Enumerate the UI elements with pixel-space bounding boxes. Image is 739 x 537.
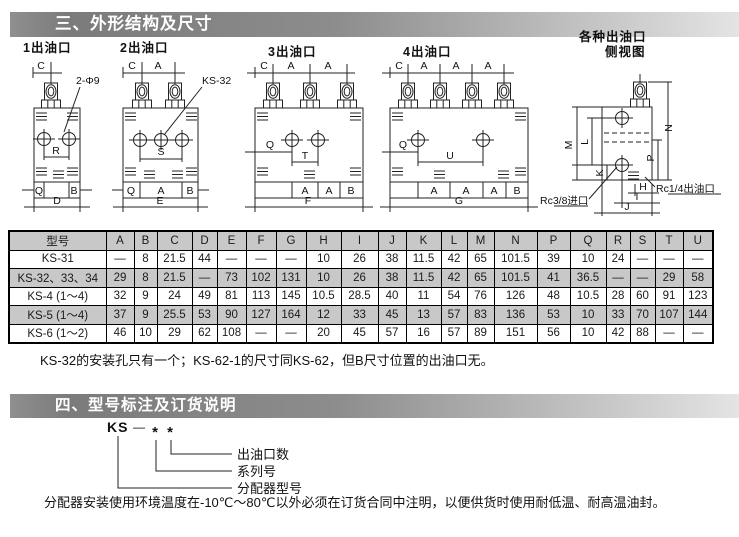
dim-a: A — [154, 60, 161, 72]
outlet-3-drawing: 3出油口 C A A Q T A A B F — [245, 44, 373, 212]
dim-i: I — [636, 191, 639, 203]
dim-r: R — [52, 145, 60, 157]
cell: 113 — [246, 287, 276, 306]
cell: 11 — [406, 287, 441, 306]
cell: 10 — [306, 250, 341, 269]
cell: 101.5 — [494, 269, 537, 288]
outlet-1-title: 1出油口 — [23, 40, 71, 55]
cell: 10.5 — [570, 287, 606, 306]
cell: 57 — [441, 324, 467, 343]
col-header: T — [655, 231, 683, 250]
inlet-port-label: Rc3/8进口 — [540, 195, 588, 207]
cell: 9 — [134, 287, 157, 306]
model-code-prefix: KS — [107, 419, 128, 435]
dim-e-overall: E — [156, 195, 163, 207]
dim-g-overall: G — [455, 195, 463, 207]
cell: 24 — [606, 250, 630, 269]
side-view-drawing: 各种出油口 侧视图 M L K N P H I J Rc3/8进口 Rc1/4出… — [540, 29, 721, 216]
col-header: S — [630, 231, 655, 250]
cell: 29 — [106, 269, 134, 288]
col-header: B — [134, 231, 157, 250]
cell: 145 — [276, 287, 306, 306]
dim-p: P — [645, 154, 657, 161]
dim-a3: A — [484, 60, 491, 72]
cell: 70 — [630, 306, 655, 325]
dim-q: Q — [266, 139, 274, 151]
dim-c: C — [260, 60, 268, 72]
cell: 57 — [378, 324, 406, 343]
dim-m: M — [563, 141, 575, 150]
col-header: P — [537, 231, 570, 250]
cell: 54 — [441, 287, 467, 306]
cell: 10 — [570, 324, 606, 343]
cell: 53 — [537, 306, 570, 325]
cell: — — [655, 324, 683, 343]
ks32-callout: KS-32 — [202, 75, 231, 87]
dimension-table: 型号ABCDEFGHIJKLMNPQRSTU KS-31—821.544———1… — [8, 230, 714, 344]
cell: 33 — [606, 306, 630, 325]
col-header: N — [494, 231, 537, 250]
table-row: KS-31—821.544———10263811.54265101.539102… — [9, 250, 713, 269]
cell: 58 — [683, 269, 713, 288]
cell: 10.5 — [306, 287, 341, 306]
dim-q: Q — [127, 185, 135, 197]
dim-q: Q — [35, 185, 43, 197]
dim-a6: A — [490, 185, 497, 197]
cell: 127 — [246, 306, 276, 325]
cell: 42 — [441, 269, 467, 288]
cell: 12 — [306, 306, 341, 325]
cell: 136 — [494, 306, 537, 325]
col-header: R — [606, 231, 630, 250]
cell: 60 — [630, 287, 655, 306]
side-view-title-line2: 侧视图 — [605, 44, 646, 59]
dim-j: J — [624, 201, 629, 213]
ordering-note: 分配器安装使用环境温度在-10℃～80℃以外必须在订货合同中注明，以便供货时使用… — [44, 492, 665, 511]
col-header: H — [306, 231, 341, 250]
cell: 83 — [467, 306, 494, 325]
table-row: KS-6 (1～2)46102962108——20455716578915156… — [9, 324, 713, 343]
cell: 123 — [683, 287, 713, 306]
col-header: U — [683, 231, 713, 250]
col-header: L — [441, 231, 467, 250]
outlet-2-drawing: 2出油口 C A KS-32 S Q A B E — [112, 40, 231, 212]
cell: 45 — [341, 324, 378, 343]
cell: 102 — [246, 269, 276, 288]
outlet-4-drawing: 4出油口 C A A A Q U A A A B G — [380, 44, 538, 212]
col-header: E — [217, 231, 246, 250]
label-series-number: 系列号 — [237, 464, 276, 479]
dim-b: B — [186, 185, 193, 197]
cell: 10 — [570, 306, 606, 325]
cell: — — [106, 250, 134, 269]
model-code-dash: — — [133, 420, 145, 434]
cell: 32 — [106, 287, 134, 306]
cell: — — [276, 324, 306, 343]
dim-a4: A — [325, 185, 332, 197]
dim-u: U — [446, 150, 454, 162]
cell: 28.5 — [341, 287, 378, 306]
col-header: M — [467, 231, 494, 250]
model-cell: KS-5 (1～4) — [9, 306, 106, 325]
col-header: 型号 — [9, 231, 106, 250]
model-cell: KS-4 (1～4) — [9, 287, 106, 306]
cell: 53 — [192, 306, 217, 325]
cell: 10 — [306, 269, 341, 288]
col-header: A — [106, 231, 134, 250]
cell: 29 — [157, 324, 192, 343]
cell: 42 — [441, 250, 467, 269]
table-row: KS-32、33、3429821.5—7310213110263811.5426… — [9, 269, 713, 288]
cell: 48 — [537, 287, 570, 306]
cell: 46 — [106, 324, 134, 343]
cell: 20 — [306, 324, 341, 343]
dim-c: C — [37, 60, 45, 72]
cell: 25.5 — [157, 306, 192, 325]
cell: 38 — [378, 269, 406, 288]
table-row: KS-5 (1～4)37925.553901271641233451357831… — [9, 306, 713, 325]
page: { "section3": { "bar_title": "三、外形结构及尺寸"… — [0, 0, 739, 537]
cell: 41 — [537, 269, 570, 288]
cell: 10 — [570, 250, 606, 269]
cell: 16 — [406, 324, 441, 343]
outlet-4-title: 4出油口 — [403, 44, 451, 59]
cell: 89 — [467, 324, 494, 343]
cell: — — [683, 250, 713, 269]
side-view-title-line1: 各种出油口 — [578, 29, 647, 44]
cell: 144 — [683, 306, 713, 325]
cell: 13 — [406, 306, 441, 325]
label-outlet-count: 出油口数 — [237, 447, 289, 462]
cell: — — [655, 250, 683, 269]
dim-c: C — [395, 60, 403, 72]
cell: 65 — [467, 269, 494, 288]
model-cell: KS-6 (1～2) — [9, 324, 106, 343]
dim-n: N — [663, 124, 675, 132]
cell: 36.5 — [570, 269, 606, 288]
cell: 9 — [134, 306, 157, 325]
cell: 21.5 — [157, 250, 192, 269]
col-header: J — [378, 231, 406, 250]
cell: 24 — [157, 287, 192, 306]
dim-h: H — [639, 181, 647, 193]
table-header-row: 型号ABCDEFGHIJKLMNPQRSTU — [9, 231, 713, 250]
cell: 62 — [192, 324, 217, 343]
cell: — — [276, 250, 306, 269]
cell: 108 — [217, 324, 246, 343]
dim-q: Q — [399, 139, 407, 151]
dim-c: C — [128, 60, 136, 72]
model-code-star1: * — [152, 424, 158, 441]
cell: 164 — [276, 306, 306, 325]
cell: 28 — [606, 287, 630, 306]
cell: 73 — [217, 269, 246, 288]
cell: 126 — [494, 287, 537, 306]
cell: 42 — [606, 324, 630, 343]
cell: — — [630, 250, 655, 269]
cell: 29 — [655, 269, 683, 288]
col-header: G — [276, 231, 306, 250]
outlet-port-label: Rc1/4出油口 — [656, 182, 715, 195]
col-header: Q — [570, 231, 606, 250]
cell: 39 — [537, 250, 570, 269]
cell: 88 — [630, 324, 655, 343]
col-header: D — [192, 231, 217, 250]
cell: 131 — [276, 269, 306, 288]
dim-a4: A — [430, 185, 437, 197]
dim-s: S — [157, 146, 164, 158]
col-header: K — [406, 231, 441, 250]
dim-a5: A — [462, 185, 469, 197]
cell: 21.5 — [157, 269, 192, 288]
cell: 65 — [467, 250, 494, 269]
cell: 8 — [134, 269, 157, 288]
col-header: I — [341, 231, 378, 250]
cell: 44 — [192, 250, 217, 269]
cell: — — [606, 269, 630, 288]
outlet-1-drawing: 1出油口 C 2-Φ9 R Q B D — [22, 40, 100, 212]
cell: 26 — [341, 269, 378, 288]
dim-a1: A — [287, 60, 294, 72]
cell: 11.5 — [406, 269, 441, 288]
table-row: KS-4 (1～4)32924498111314510.528.54011547… — [9, 287, 713, 306]
dim-b: B — [347, 185, 354, 197]
table-note: KS-32的安装孔只有一个；KS-62-1的尺寸同KS-62，但B尺寸位置的出油… — [40, 350, 494, 369]
outlet-2-title: 2出油口 — [120, 40, 168, 55]
cell: 107 — [655, 306, 683, 325]
dim-k: K — [594, 169, 606, 176]
cell: 49 — [192, 287, 217, 306]
cell: 57 — [441, 306, 467, 325]
cell: 10 — [134, 324, 157, 343]
cell: — — [246, 250, 276, 269]
outlet-3-title: 3出油口 — [268, 44, 316, 59]
cell: 151 — [494, 324, 537, 343]
cell: 76 — [467, 287, 494, 306]
col-header: C — [157, 231, 192, 250]
dim-b: B — [70, 185, 77, 197]
cell: — — [630, 269, 655, 288]
model-cell: KS-32、33、34 — [9, 269, 106, 288]
cell: — — [217, 250, 246, 269]
dim-f-overall: F — [305, 195, 311, 207]
dim-a2: A — [452, 60, 459, 72]
cell: 8 — [134, 250, 157, 269]
dim-d-overall: D — [53, 195, 61, 207]
cell: 33 — [341, 306, 378, 325]
cell: 91 — [655, 287, 683, 306]
cell: 11.5 — [406, 250, 441, 269]
cell: 38 — [378, 250, 406, 269]
cell: 90 — [217, 306, 246, 325]
hole-callout: 2-Φ9 — [76, 75, 100, 87]
dim-t: T — [302, 150, 309, 162]
cell: 101.5 — [494, 250, 537, 269]
cell: 56 — [537, 324, 570, 343]
cell: 81 — [217, 287, 246, 306]
cell: 45 — [378, 306, 406, 325]
cell: — — [192, 269, 217, 288]
cell: — — [683, 324, 713, 343]
cell: 40 — [378, 287, 406, 306]
col-header: F — [246, 231, 276, 250]
model-cell: KS-31 — [9, 250, 106, 269]
dim-a2: A — [324, 60, 331, 72]
cell: 37 — [106, 306, 134, 325]
cell: 26 — [341, 250, 378, 269]
model-code-star2: * — [167, 424, 173, 441]
dim-b: B — [513, 185, 520, 197]
outline-drawings: 1出油口 C 2-Φ9 R Q B D 2出油口 C A KS-32 — [0, 14, 739, 229]
dim-a1: A — [420, 60, 427, 72]
cell: — — [246, 324, 276, 343]
dim-l: L — [579, 139, 591, 145]
